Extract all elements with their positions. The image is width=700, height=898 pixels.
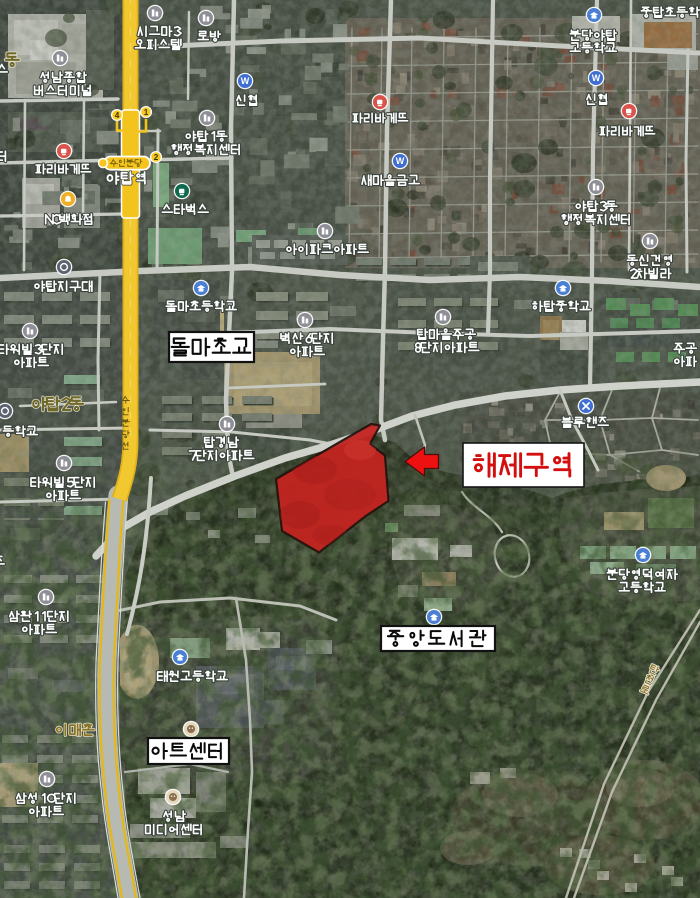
svg-text:4: 4 — [115, 111, 120, 120]
svg-text:2: 2 — [154, 153, 159, 162]
svg-text:W: W — [241, 76, 250, 86]
svg-text:W: W — [396, 156, 405, 166]
svg-text:W: W — [592, 73, 601, 83]
svg-text:1: 1 — [144, 108, 149, 117]
